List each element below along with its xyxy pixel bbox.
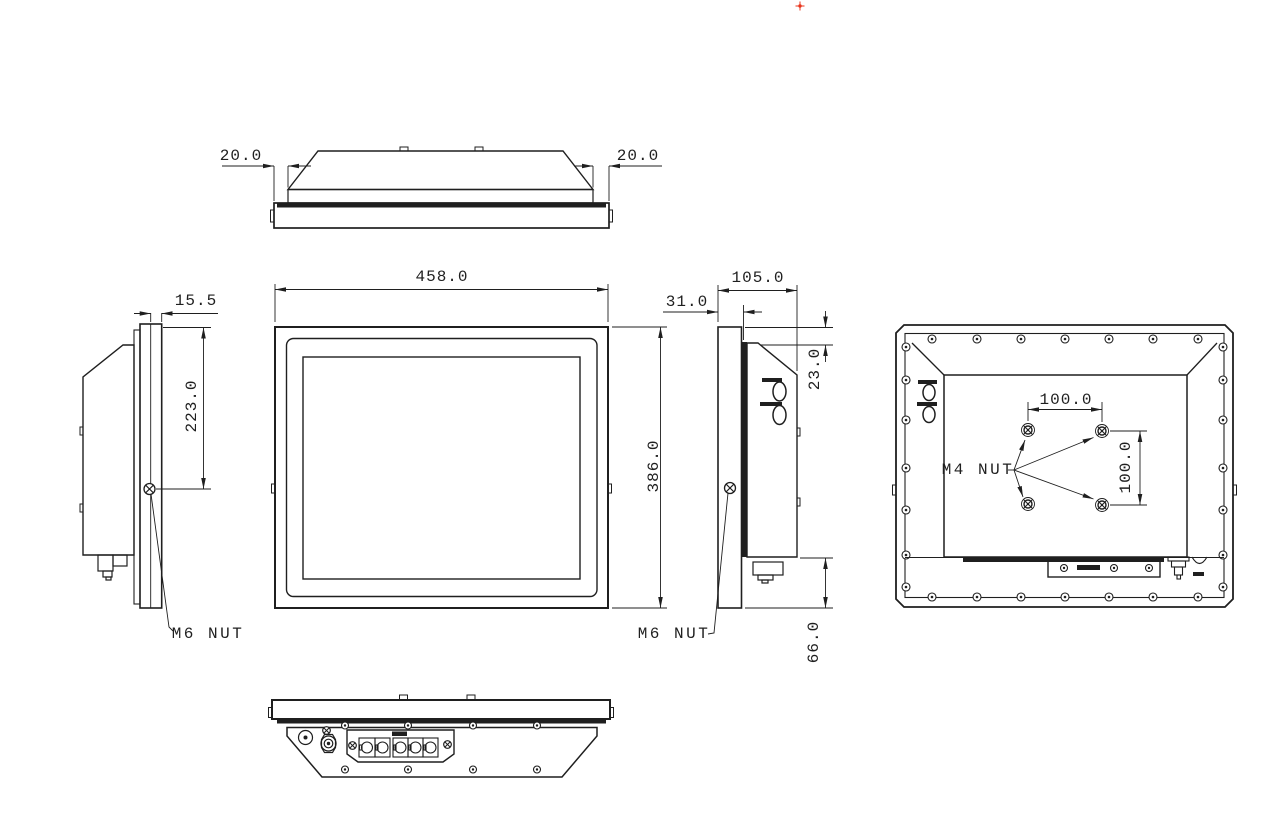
left-rear-housing xyxy=(83,345,134,555)
m4-nut xyxy=(1096,425,1109,438)
left-side-view xyxy=(80,313,218,631)
plate-screw xyxy=(444,741,452,749)
bottom-gasket-band xyxy=(277,719,606,724)
right-rear-housing xyxy=(747,343,797,557)
dim-bottom-inset: 66.0 xyxy=(806,621,822,663)
top-gasket-band xyxy=(277,204,606,208)
osd-knob xyxy=(773,406,786,425)
drawing-canvas: 20.0 20.0 458.0 386.0 15.5 223.0 105.0 3… xyxy=(0,0,1264,813)
dim-top-inset: 23.0 xyxy=(807,348,823,390)
m6-nut-left xyxy=(144,484,155,495)
bottom-view xyxy=(269,695,614,777)
m4-leader-lines xyxy=(1008,438,1094,500)
top-rear-flange xyxy=(288,190,593,204)
left-housing-bump xyxy=(80,504,83,512)
left-bottom-connectors xyxy=(98,555,127,580)
power-label-mark xyxy=(1193,572,1204,576)
io-label-mark xyxy=(392,732,407,737)
bottom-front-bezel xyxy=(272,700,610,719)
right-housing-bump xyxy=(797,428,800,436)
front-outer-frame xyxy=(275,327,608,608)
dim-lines-right xyxy=(663,285,833,608)
osd-knobs-rear xyxy=(917,380,937,423)
dim-front-height: 386.0 xyxy=(646,439,662,492)
power-inlet-connector xyxy=(321,735,336,753)
dim-front-width: 458.0 xyxy=(415,269,468,285)
label-m6-nut-left: M6 NUT xyxy=(172,626,245,642)
osd-knob xyxy=(773,382,786,401)
dim-top-left-offset: 20.0 xyxy=(220,148,262,164)
dim-bezel-thickness: 15.5 xyxy=(175,293,217,309)
osd-knobs-side xyxy=(760,378,786,425)
front-bezel-face xyxy=(287,339,598,597)
m4-nut xyxy=(1022,498,1035,511)
right-side-view xyxy=(663,285,833,634)
knob-label-mark xyxy=(918,380,937,384)
osd-knob xyxy=(923,385,935,401)
front-view xyxy=(272,284,668,608)
m4-nut xyxy=(1022,424,1035,437)
dim-vesa-height: 100.0 xyxy=(1118,440,1134,493)
osd-knob xyxy=(923,407,935,423)
right-front-bezel xyxy=(718,327,742,608)
front-screen xyxy=(303,357,580,579)
power-connector xyxy=(1168,557,1189,579)
small-screw xyxy=(323,727,331,735)
right-gasket xyxy=(742,342,748,557)
io-label-mark xyxy=(1077,565,1100,570)
bottom-left-cluster xyxy=(299,727,337,753)
dim-mount-span: 223.0 xyxy=(184,379,200,432)
label-m6-nut-right: M6 NUT xyxy=(638,626,711,642)
plate-screw xyxy=(349,742,357,750)
rear-io-strip xyxy=(1048,560,1160,577)
rear-corner-slope xyxy=(912,343,944,375)
origin-marker xyxy=(796,2,805,11)
dim-top-right-offset: 20.0 xyxy=(617,148,659,164)
knob-label-mark xyxy=(917,402,937,406)
m4-nut xyxy=(1096,499,1109,512)
dim-front-depth: 31.0 xyxy=(666,294,708,310)
left-housing-bump xyxy=(80,427,83,435)
dim-total-depth: 105.0 xyxy=(731,270,784,286)
rear-corner-slope xyxy=(1187,343,1217,375)
dim-lines-left xyxy=(134,313,218,489)
m6-nut-right xyxy=(725,483,736,494)
top-view xyxy=(222,147,662,228)
dim-vesa-width: 100.0 xyxy=(1039,392,1092,408)
top-rear-housing xyxy=(288,151,593,190)
bottom-io-plate xyxy=(347,730,454,762)
vesa-mount-nuts xyxy=(1022,424,1109,512)
right-housing-bump xyxy=(797,498,800,506)
left-rear-flange xyxy=(134,330,140,604)
right-bottom-connectors xyxy=(753,562,783,583)
label-m4-nut: M4 NUT xyxy=(942,462,1015,478)
